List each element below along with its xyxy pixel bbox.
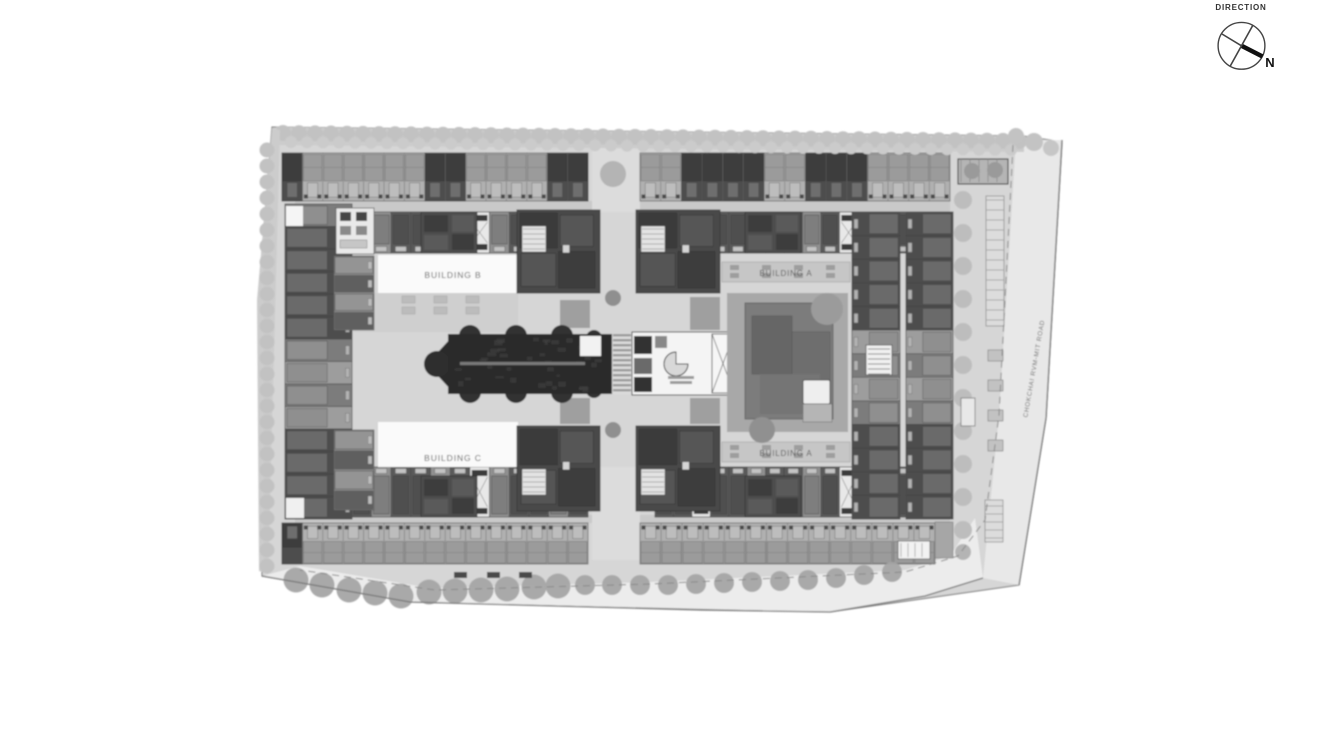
svg-text:BUILDING A: BUILDING A: [760, 269, 813, 278]
svg-text:N: N: [1265, 55, 1274, 70]
svg-text:BUILDING C: BUILDING C: [424, 453, 482, 463]
svg-text:DIRECTION: DIRECTION: [1215, 3, 1266, 12]
svg-text:BUILDING B: BUILDING B: [424, 270, 481, 280]
svg-text:BUILDING A: BUILDING A: [760, 449, 813, 458]
